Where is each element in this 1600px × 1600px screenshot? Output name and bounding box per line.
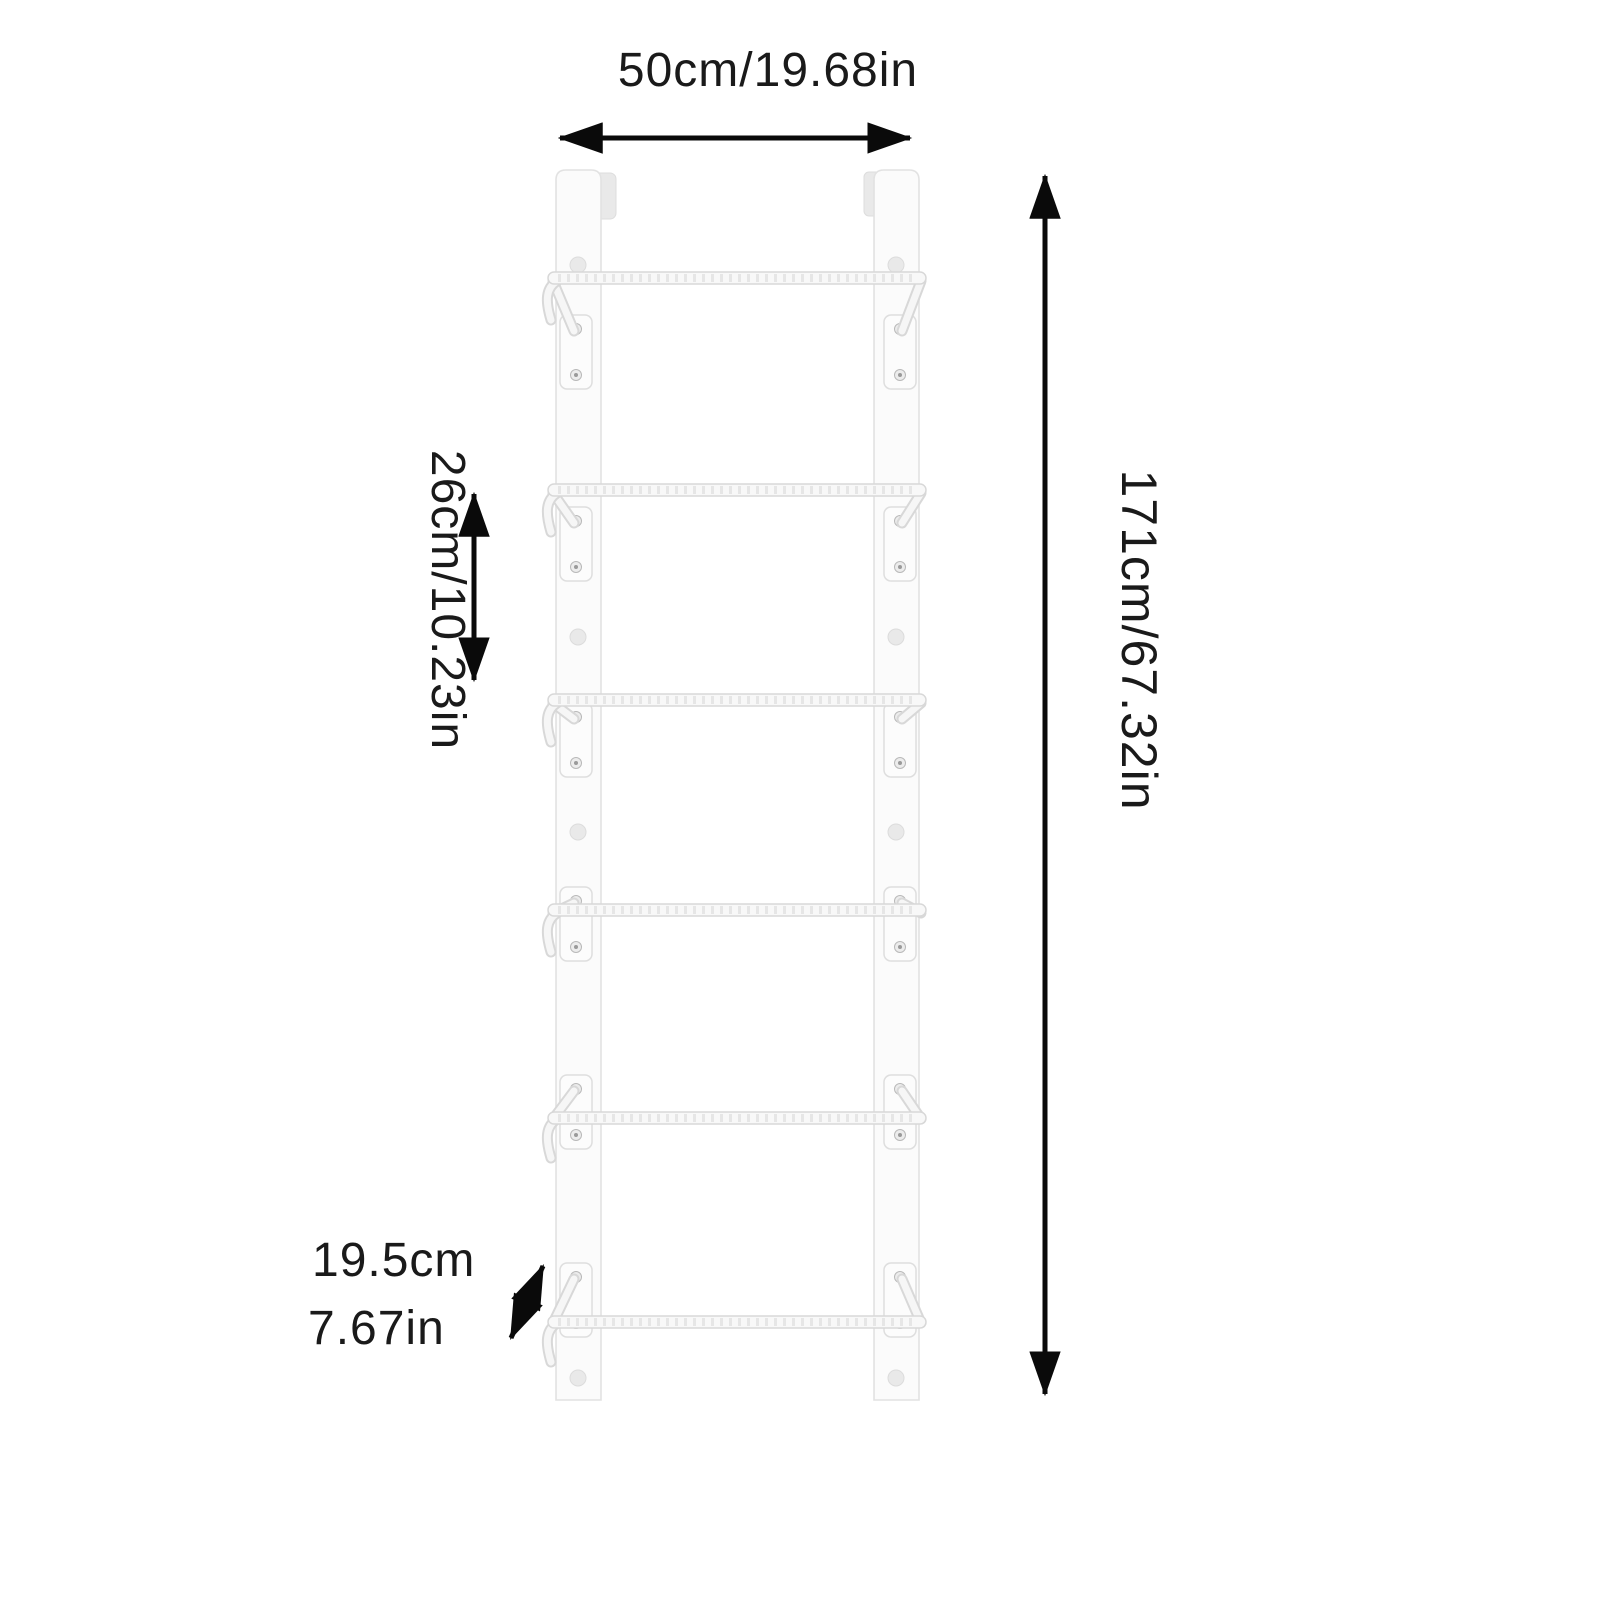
mount-holes xyxy=(570,257,904,1386)
rung-spacing-label: 26cm/10.23in xyxy=(421,450,474,750)
mount-hole xyxy=(570,257,586,273)
mount-hole xyxy=(570,1370,586,1386)
dimension-annotations: 50cm/19.68in 26cm/10.23in 171cm/67.32in … xyxy=(308,44,1167,1394)
product-dimension-diagram: 50cm/19.68in 26cm/10.23in 171cm/67.32in … xyxy=(0,0,1600,1600)
rung-3 xyxy=(547,694,926,777)
depth-label-cm: 19.5cm xyxy=(312,1234,475,1287)
rung-1 xyxy=(547,272,926,389)
mount-hole xyxy=(888,1370,904,1386)
rung-4 xyxy=(547,887,926,961)
height-label: 171cm/67.32in xyxy=(1111,469,1167,810)
mount-hole xyxy=(570,824,586,840)
mount-hole xyxy=(888,824,904,840)
mount-hole xyxy=(888,629,904,645)
rung-5 xyxy=(547,1075,926,1158)
depth-label-in: 7.67in xyxy=(308,1302,445,1355)
rung-6 xyxy=(547,1263,926,1362)
diagram-svg: 50cm/19.68in 26cm/10.23in 171cm/67.32in … xyxy=(0,0,1600,1600)
width-label: 50cm/19.68in xyxy=(618,44,918,97)
mount-hole xyxy=(570,629,586,645)
ladder-rack xyxy=(547,170,926,1400)
depth-arrow-icon xyxy=(511,1266,543,1338)
mount-hole xyxy=(888,257,904,273)
rung-2 xyxy=(547,484,926,581)
